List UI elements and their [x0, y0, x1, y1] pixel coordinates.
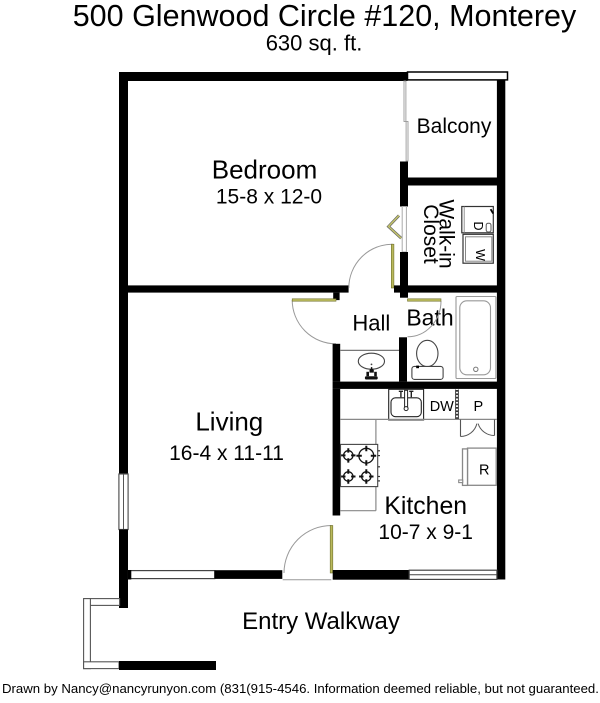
svg-text:15-8 x 12-0: 15-8 x 12-0 — [216, 186, 322, 209]
svg-text:630 sq. ft.: 630 sq. ft. — [266, 31, 363, 56]
svg-text:Kitchen: Kitchen — [384, 493, 467, 520]
svg-text:Bedroom: Bedroom — [212, 155, 318, 185]
svg-text:Bath: Bath — [406, 304, 453, 330]
svg-text:16-4 x 11-11: 16-4 x 11-11 — [169, 442, 284, 465]
svg-text:DW: DW — [430, 399, 454, 415]
svg-text:Entry Walkway: Entry Walkway — [242, 608, 400, 635]
svg-text:Closet: Closet — [419, 204, 442, 264]
svg-text:Living: Living — [195, 406, 263, 436]
svg-text:Drawn by Nancy@nancyrunyon.com: Drawn by Nancy@nancyrunyon.com (831(915-… — [2, 681, 599, 696]
svg-text:W: W — [473, 249, 487, 261]
svg-text:P: P — [473, 399, 483, 415]
svg-text:D: D — [471, 221, 485, 230]
svg-text:R: R — [479, 463, 489, 479]
svg-text:Hall: Hall — [352, 311, 390, 336]
svg-text:500 Glenwood Circle #120, Mont: 500 Glenwood Circle #120, Monterey — [73, 0, 577, 33]
svg-text:10-7 x 9-1: 10-7 x 9-1 — [378, 521, 473, 544]
svg-text:Balcony: Balcony — [417, 115, 492, 138]
